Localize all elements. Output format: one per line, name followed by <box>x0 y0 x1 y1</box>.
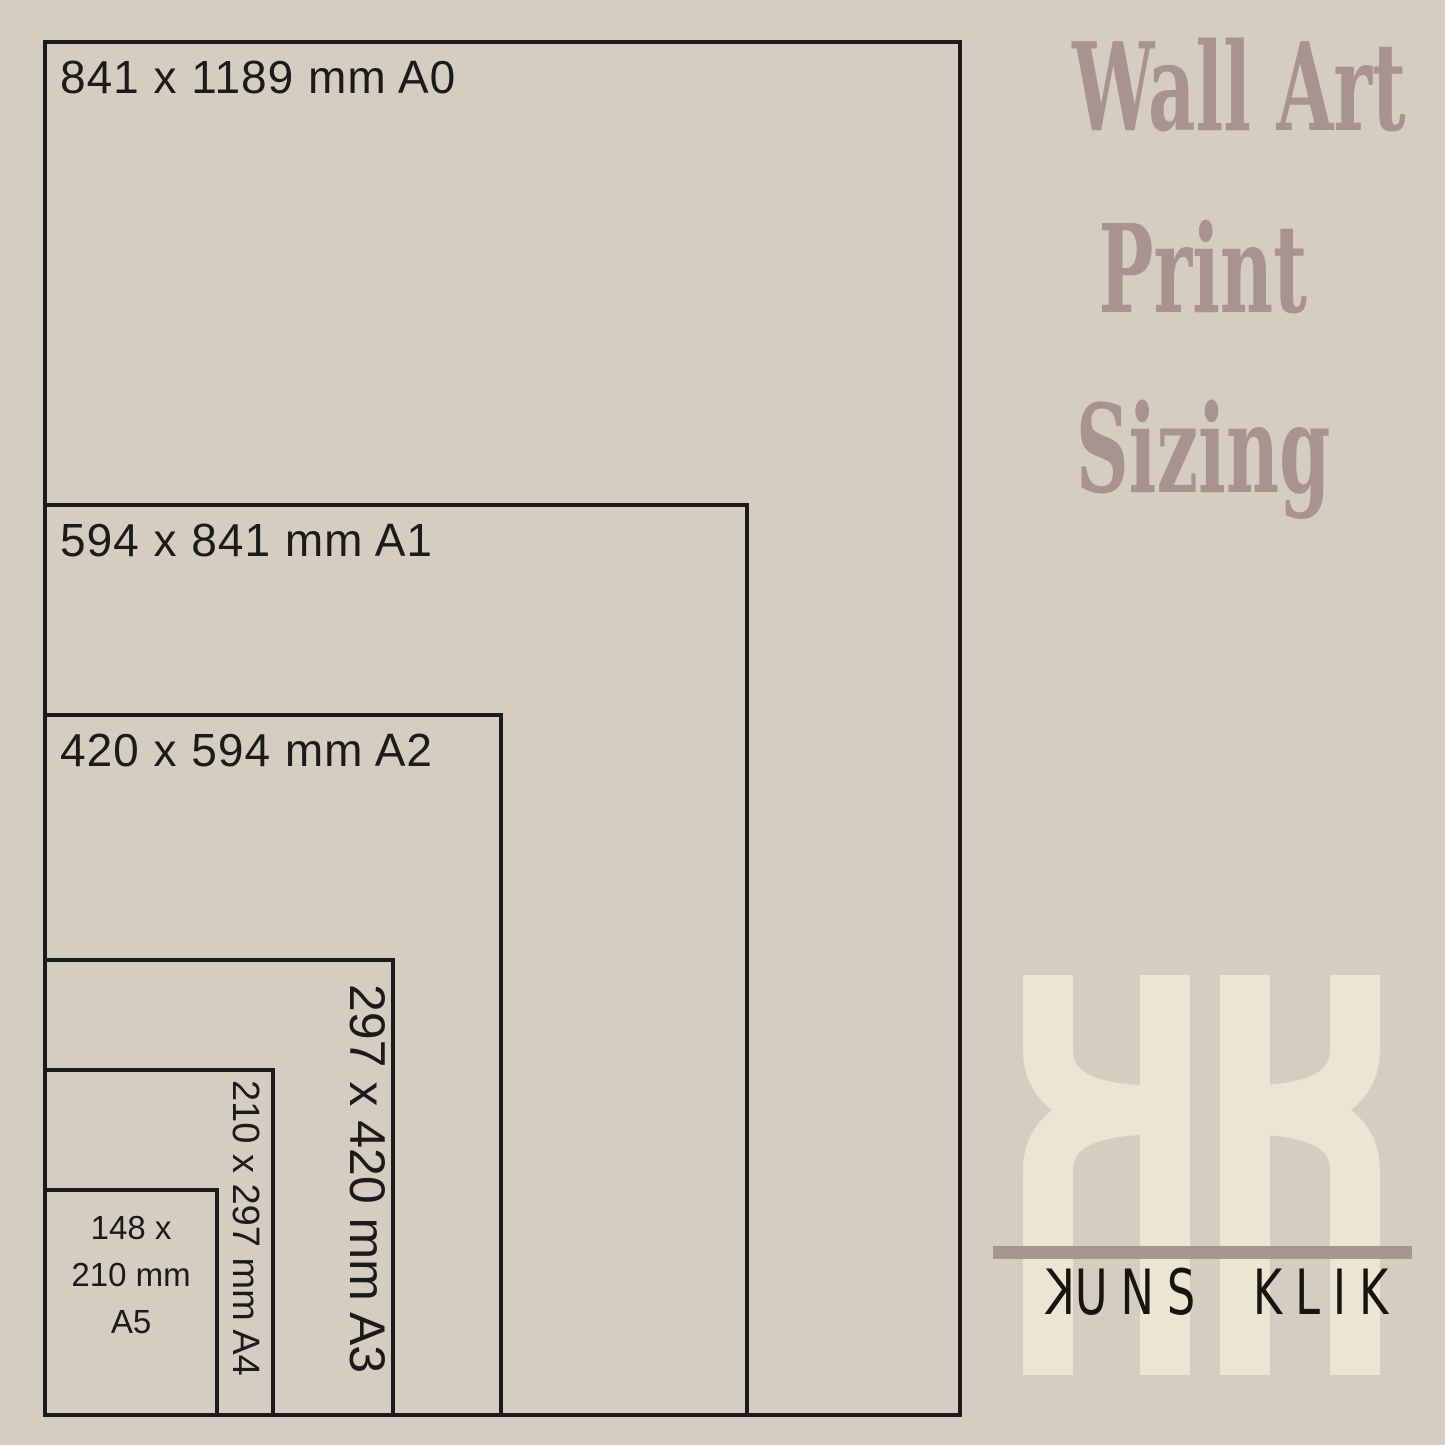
size-label-a1: 594 x 841 mm A1 <box>60 513 433 567</box>
logo-word-second: KLIK <box>1253 1256 1401 1329</box>
logo-mirrored-k: K <box>1033 1262 1075 1324</box>
size-label-a0: 841 x 1189 mm A0 <box>60 50 456 104</box>
logo-word-first-rest: UNS <box>1075 1256 1208 1329</box>
page-title-line-3: Sizing <box>961 384 1445 514</box>
title-text-sizing: Sizing <box>1076 384 1330 514</box>
page-title-line-1: Wall Art <box>961 22 1445 152</box>
poster-canvas: 841 x 1189 mm A0 594 x 841 mm A1 420 x 5… <box>0 0 1445 1445</box>
title-text-print: Print <box>1099 204 1307 334</box>
logo-wordmark: KUNSKLIK <box>961 1262 1445 1324</box>
logo-wordmark-text: KUNSKLIK <box>1033 1262 1402 1324</box>
size-label-a5-line1: 148 x <box>47 1204 215 1251</box>
size-label-a5-line2: 210 mm <box>47 1251 215 1298</box>
size-label-a3: 297 x 420 mm A3 <box>340 984 394 1373</box>
size-label-a5-line3: A5 <box>47 1298 215 1345</box>
size-box-a5: 148 x 210 mm A5 <box>43 1188 219 1417</box>
size-label-a5: 148 x 210 mm A5 <box>47 1204 215 1345</box>
page-title-line-2: Print <box>961 204 1445 334</box>
size-label-a4: 210 x 297 mm A4 <box>224 1080 266 1376</box>
title-text-wall-art: Wall Art <box>1072 22 1406 152</box>
size-label-a2: 420 x 594 mm A2 <box>60 723 433 777</box>
